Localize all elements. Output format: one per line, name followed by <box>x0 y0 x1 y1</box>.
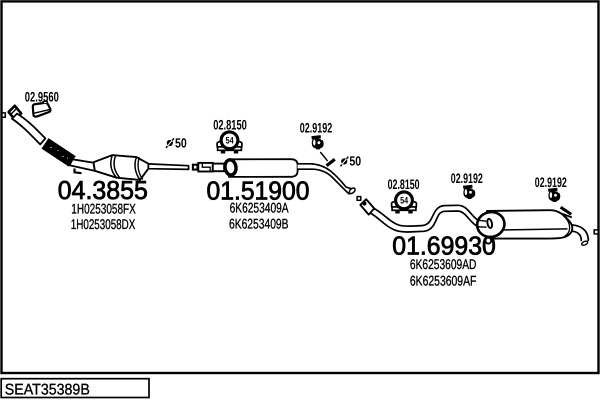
svg-text:02.9560: 02.9560 <box>25 89 59 104</box>
svg-text:1H0253058FX: 1H0253058FX <box>71 200 136 216</box>
svg-text:6K6253409B: 6K6253409B <box>229 216 289 232</box>
svg-text:6K6253609AD: 6K6253609AD <box>410 256 477 272</box>
svg-text:6K6253409A: 6K6253409A <box>230 200 289 216</box>
svg-text:1H0253058DX: 1H0253058DX <box>71 216 136 232</box>
svg-text:02.9192: 02.9192 <box>451 171 483 186</box>
svg-text:50: 50 <box>175 135 187 150</box>
svg-text:SEAT35389B: SEAT35389B <box>5 381 90 398</box>
svg-text:02.8150: 02.8150 <box>213 117 247 132</box>
svg-text:02.9192: 02.9192 <box>300 120 333 135</box>
svg-text:02.9192: 02.9192 <box>535 175 567 190</box>
svg-text:6K6253609AF: 6K6253609AF <box>410 273 477 289</box>
svg-text:50: 50 <box>349 154 361 169</box>
svg-text:02.8150: 02.8150 <box>388 177 420 192</box>
